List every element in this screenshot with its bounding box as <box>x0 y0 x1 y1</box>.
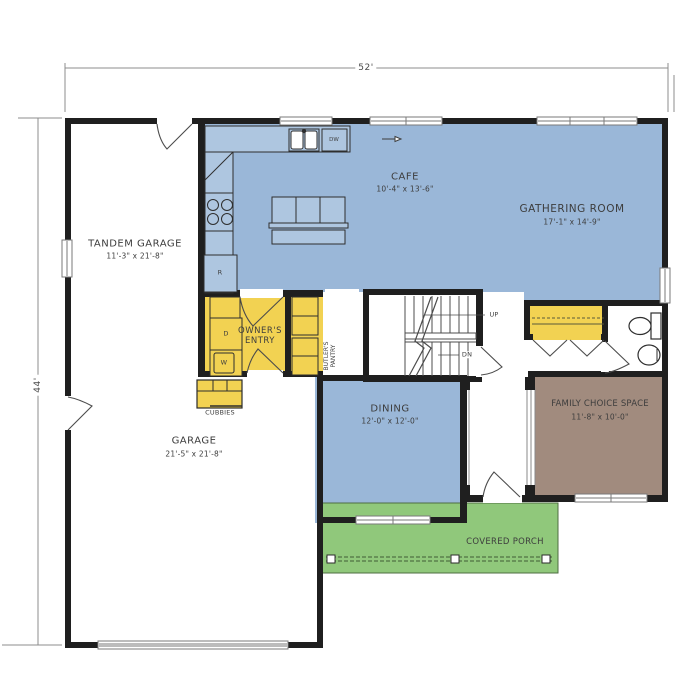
family-choice-space-floor <box>528 377 668 502</box>
room-label-cafe: CAFE <box>391 171 419 183</box>
dryer-label: D <box>223 330 228 337</box>
dining-floor <box>315 375 467 523</box>
dishwasher-label: DW <box>329 137 339 143</box>
room-dims-gathering-room: 17'-1" x 14'-9" <box>543 219 600 228</box>
width-dimension-label: 52' <box>355 63 376 73</box>
toilet-icon <box>629 318 651 335</box>
stair-hall-door <box>481 347 502 375</box>
room-label-cubbies: CUBBIES <box>205 409 235 416</box>
porch-post <box>542 555 550 563</box>
entry-cabinet <box>210 297 240 318</box>
floor-plan-page: 52' 44' TANDEM GARAGE 11'-3" x 21'-8" CA… <box>0 0 700 700</box>
height-dimension-label: 44' <box>33 374 43 395</box>
room-dims-cafe: 10'-4" x 13'-6" <box>376 186 433 195</box>
room-dims-garage: 21'-5" x 21'-8" <box>165 451 222 460</box>
room-label-family-choice-space: FAMILY CHOICE SPACE <box>551 400 649 410</box>
garage-door <box>98 641 288 649</box>
range-label: R <box>218 269 223 276</box>
washer-label: W <box>221 359 228 366</box>
island-counter-edge <box>269 223 348 228</box>
room-label-owners-entry: OWNER'S ENTRY <box>229 327 291 347</box>
room-label-garage: GARAGE <box>172 435 217 447</box>
closet-bifold-left <box>533 340 567 356</box>
powder-room-fixtures <box>629 313 661 365</box>
toilet-tank <box>651 313 661 339</box>
kitchen-island <box>272 197 345 223</box>
room-dims-dining: 12'-0" x 12'-0" <box>361 418 418 427</box>
porch-post <box>451 555 459 563</box>
room-label-tandem-garage: TANDEM GARAGE <box>88 238 182 250</box>
island-seating <box>272 230 345 244</box>
room-label-gathering-room: GATHERING ROOM <box>519 203 624 215</box>
room-label-dining: DINING <box>370 403 409 415</box>
staircase <box>405 296 485 376</box>
stair-down-label: DN <box>461 351 473 358</box>
cubbies-unit <box>197 380 242 408</box>
closet-bifold-right <box>570 340 604 356</box>
room-label-butlers-pantry: BUTLER'S PANTRY <box>324 332 338 380</box>
floor-plan-canvas <box>0 0 700 700</box>
cased-openings <box>461 388 535 487</box>
stair-up-label: UP <box>488 311 499 318</box>
room-dims-tandem-garage: 11'-3" x 21'-8" <box>106 253 163 262</box>
room-dims-family-choice-space: 11'-8" x 10'-0" <box>571 414 628 423</box>
porch-post <box>327 555 335 563</box>
room-label-covered-porch: COVERED PORCH <box>466 538 544 548</box>
front-door <box>483 472 520 497</box>
tandem-garage-entry-door <box>157 124 192 149</box>
